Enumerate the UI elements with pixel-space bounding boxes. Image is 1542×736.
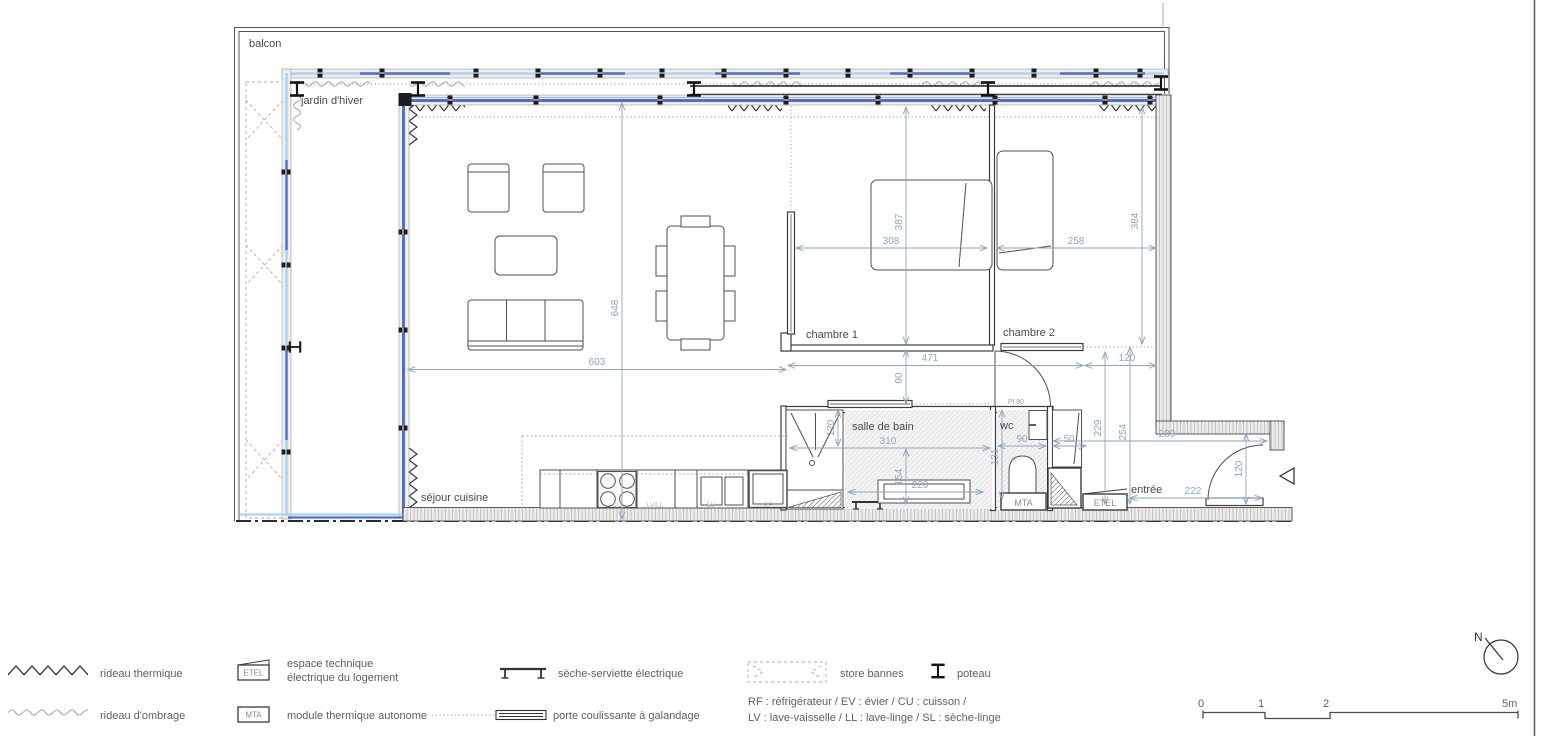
label-cu: CU	[612, 502, 622, 509]
legend-rideau-thermique: rideau thermique	[100, 668, 183, 680]
etel-icon: ETEL	[238, 660, 269, 680]
shade-curtain-wave-vertical	[294, 95, 301, 130]
dim-label: 120	[826, 419, 837, 436]
dim-label: 384	[1130, 212, 1141, 229]
dim-label: 289	[1159, 429, 1176, 440]
entry-arrow-icon	[1280, 468, 1294, 484]
kitchen	[522, 436, 788, 508]
legend-seche-serviette: sèche-serviette électrique	[558, 668, 683, 680]
partition-chambres-south	[782, 345, 993, 351]
dim-label: 154	[894, 468, 905, 485]
north-letter: N	[1474, 630, 1483, 644]
store-bannes-strip	[246, 82, 283, 518]
store-bannes-chevron	[246, 100, 283, 140]
room-label-chambre1: chambre 1	[806, 329, 858, 341]
shade-curtain-icon	[8, 707, 88, 718]
legend-store-bannes: store bannes	[840, 668, 904, 680]
dim-label: 229	[1093, 419, 1104, 436]
dim-label: 308	[883, 236, 900, 247]
legend-etel-tag: ETEL	[243, 669, 264, 678]
poteau-icon	[931, 665, 944, 677]
sofa	[468, 300, 583, 350]
legend-etel-line1: espace technique	[287, 658, 373, 670]
label-ev: EV	[707, 502, 716, 509]
label-etel: ETEL	[1094, 498, 1117, 508]
room-label-sdb: salle de bain	[852, 421, 914, 433]
legend-rideau-ombrage: rideau d'ombrage	[100, 710, 185, 722]
label-mta: MTA	[1014, 498, 1032, 508]
exterior-wall-right	[1156, 95, 1171, 423]
scale-bar: 0 1 2 5m	[1198, 698, 1518, 719]
exterior-wall-return	[1270, 421, 1284, 450]
thermal-curtain-zigzag-vertical	[409, 448, 417, 508]
dining-chair	[724, 291, 735, 321]
legend: rideau thermique rideau d'ombrage ETEL e…	[8, 658, 1001, 724]
north-arrow: N	[1474, 630, 1518, 674]
scale-tick-1: 1	[1258, 698, 1264, 710]
room-label-chambre2: chambre 2	[1003, 327, 1055, 339]
sink-bowl	[701, 477, 722, 505]
sheet-marks	[1163, 0, 1535, 736]
shade-curtain-wave	[1090, 79, 1158, 89]
wall-stub	[781, 333, 791, 351]
legend-poteau: poteau	[957, 668, 991, 680]
dim-label: 120	[1234, 460, 1245, 477]
room-label-jardin: jardin d'hiver	[300, 95, 363, 107]
dining-chair	[681, 339, 710, 350]
dim-label: 471	[922, 353, 939, 364]
coffee-table	[495, 236, 557, 275]
store-bannes-chevron	[246, 440, 283, 480]
dim-label: 603	[589, 357, 606, 368]
door-leaf-entry	[1206, 498, 1263, 506]
bathroom	[786, 410, 1127, 510]
shade-curtain-wave	[300, 79, 370, 89]
armchair	[543, 164, 584, 212]
room-label-wc: wc	[999, 420, 1014, 432]
dining-chair	[681, 216, 710, 227]
dining-chair	[656, 291, 667, 321]
dim-label: 648	[610, 299, 621, 316]
room-label-sejour: séjour cuisine	[421, 492, 488, 504]
dim-label: 120	[1119, 353, 1136, 364]
scale-tick-2: 2	[1323, 698, 1329, 710]
dim-label: 90	[1016, 434, 1028, 445]
shade-curtain-wave	[733, 79, 801, 89]
store-bannes-icon	[748, 662, 826, 682]
sliding-door-icon	[432, 711, 546, 720]
dim-label: 50	[1063, 434, 1075, 445]
corner-post	[399, 93, 412, 106]
legend-etel-line2: électrique du logement	[287, 672, 398, 684]
dining-table	[667, 226, 724, 340]
bed-chambre1	[871, 180, 992, 270]
towel-dryer-icon	[500, 669, 546, 678]
mta-icon: MTA	[238, 707, 269, 722]
legend-mta-desc: module thermique autonome	[287, 710, 427, 722]
label-pl80: Pl 80	[1008, 399, 1024, 406]
furniture	[468, 151, 1053, 350]
exterior-wall-bottom	[403, 508, 1292, 522]
floor-plan-drawing: 603 471 120 308 258 310 220 90 50 289 22…	[0, 0, 1542, 736]
pivot-door-mark	[290, 341, 300, 352]
dim-label: 387	[894, 213, 905, 230]
dim-label: 220	[912, 480, 929, 491]
dim-label: 254	[1118, 423, 1129, 440]
label-rf: RF	[764, 502, 773, 509]
dim-label: 310	[880, 436, 897, 447]
architectural-floor-plan: 603 471 120 308 258 310 220 90 50 289 22…	[0, 0, 1542, 736]
dim-label: 90	[894, 372, 905, 384]
sink-bowl	[725, 477, 743, 505]
store-bannes-chevron	[246, 245, 283, 285]
room-label-balcon: balcon	[249, 38, 281, 50]
room-label-entree: entrée	[1131, 484, 1162, 496]
legend-abbrev-line2: LV : lave-vaisselle / LL : lave-linge / …	[748, 712, 1001, 724]
armchair	[468, 164, 509, 212]
dim-label: 131	[990, 448, 1001, 465]
shade-curtain-wave	[922, 79, 984, 89]
dining-chair	[656, 246, 667, 276]
scale-tick-0: 0	[1198, 698, 1204, 710]
dim-label: 222	[1185, 486, 1202, 497]
scale-tick-5m: 5m	[1502, 698, 1517, 710]
dining-chair	[724, 246, 735, 276]
legend-porte-coulissante: porte coulissante à galandage	[553, 710, 700, 722]
dim-label: 258	[1068, 236, 1085, 247]
legend-abbrev-line1: RF : réfrigérateur / EV : évier / CU : c…	[748, 696, 967, 708]
thermal-curtain-icon	[8, 664, 88, 677]
label-lvll: LV/LL	[647, 502, 664, 509]
legend-mta-tag: MTA	[245, 711, 262, 720]
